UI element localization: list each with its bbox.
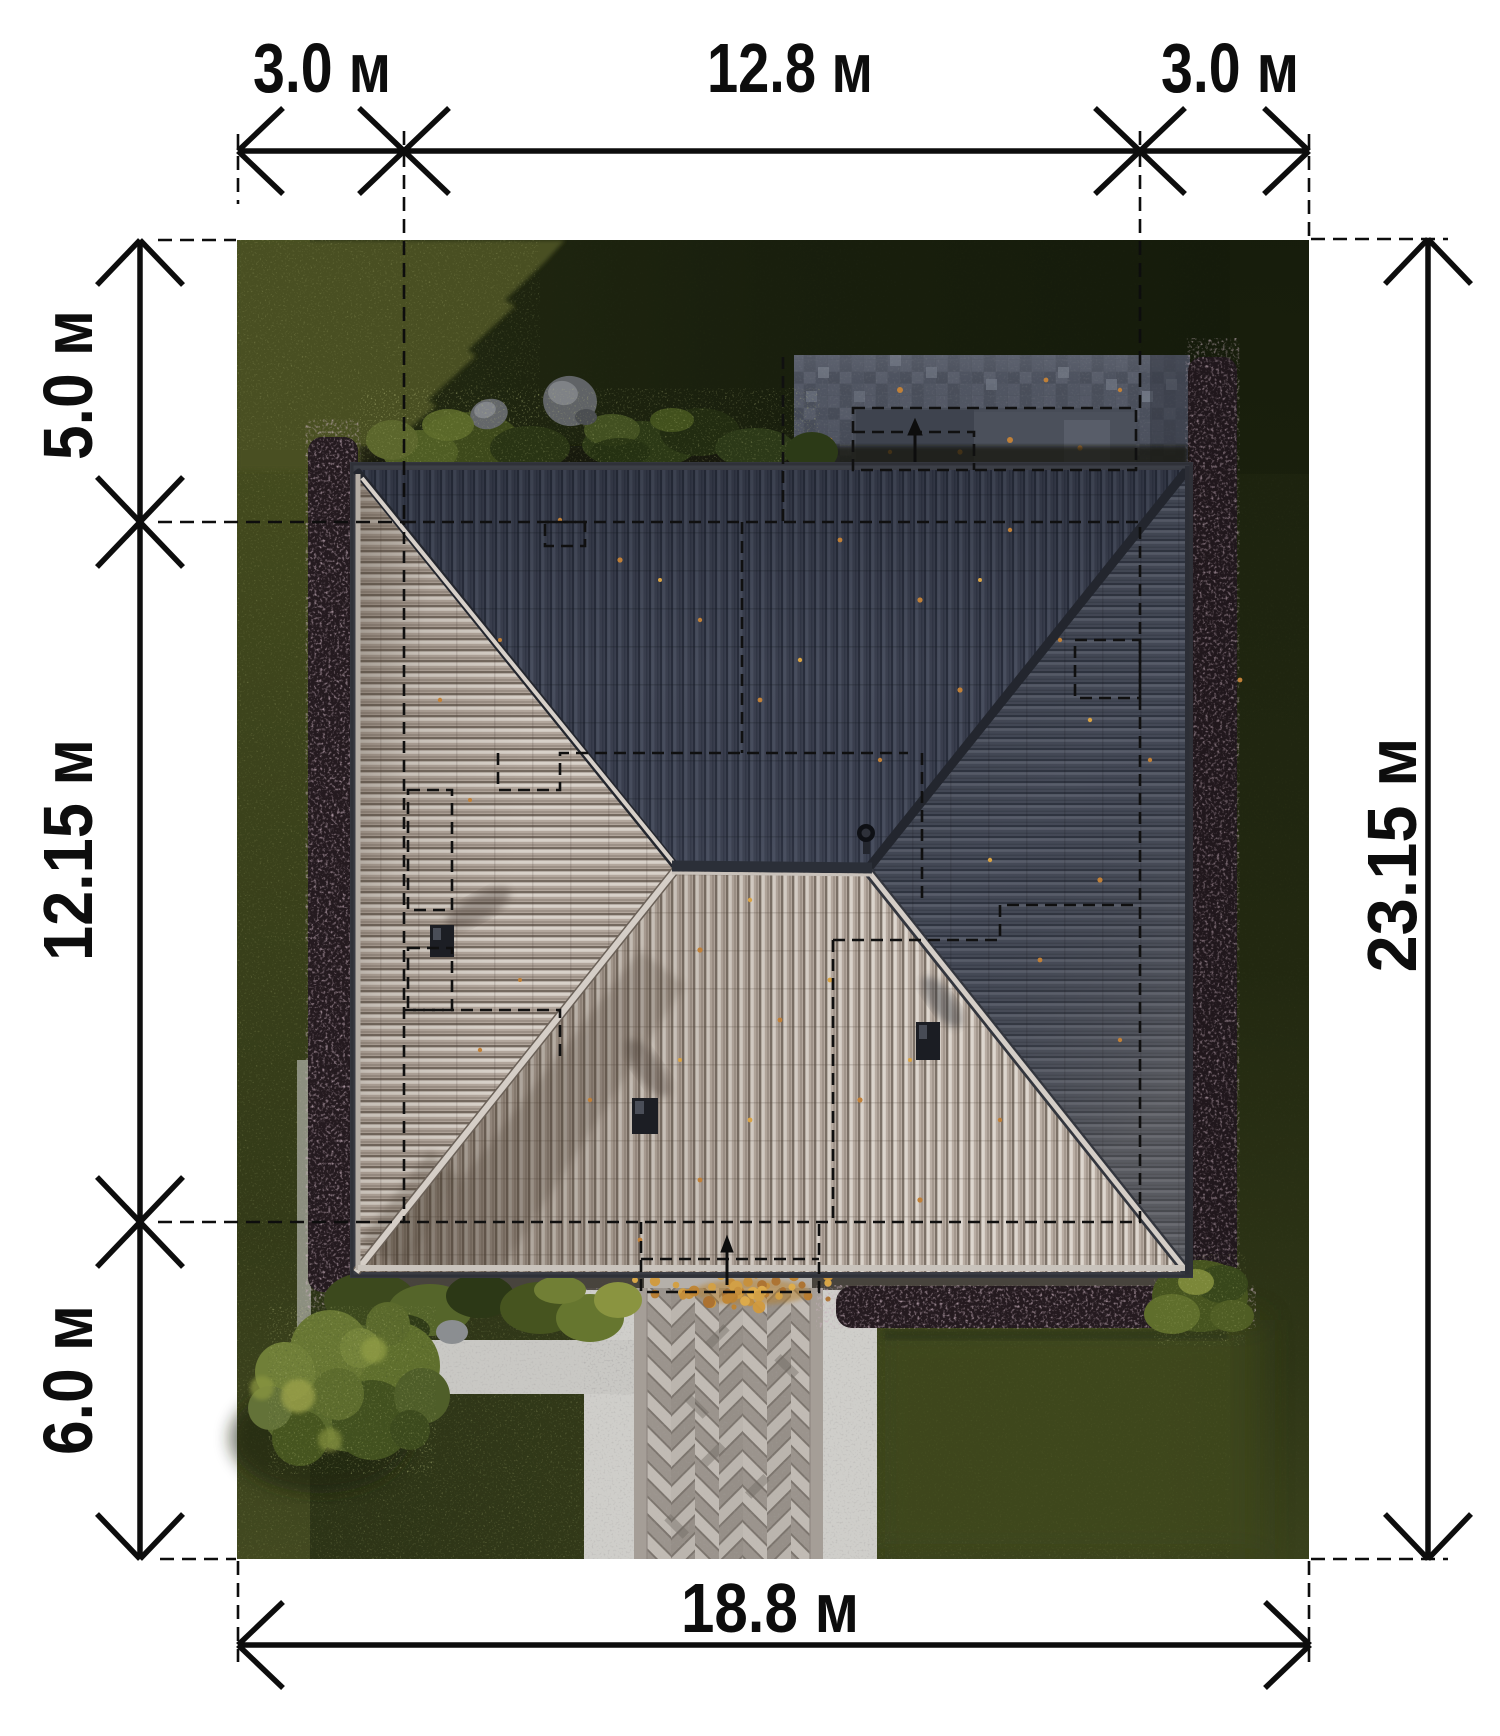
svg-text:23.15 м: 23.15 м	[1353, 738, 1431, 973]
svg-text:5.0 м: 5.0 м	[29, 310, 107, 460]
svg-text:3.0 м: 3.0 м	[1161, 29, 1299, 107]
svg-text:12.15 м: 12.15 м	[29, 739, 107, 961]
svg-text:6.0 м: 6.0 м	[29, 1305, 107, 1455]
svg-text:12.8 м: 12.8 м	[707, 29, 873, 107]
svg-text:18.8 м: 18.8 м	[681, 1569, 859, 1647]
svg-text:3.0 м: 3.0 м	[253, 29, 391, 107]
